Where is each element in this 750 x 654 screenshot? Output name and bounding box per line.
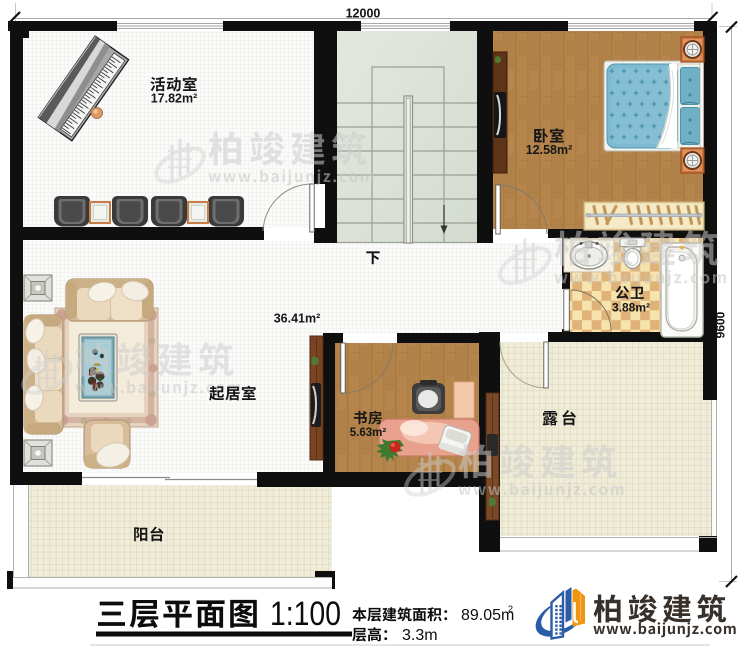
svg-text:3.88m²: 3.88m² — [612, 301, 650, 315]
svg-text:12.58m²: 12.58m² — [526, 143, 573, 157]
svg-text:89.05m: 89.05m — [461, 607, 514, 624]
svg-text:3.3m: 3.3m — [402, 627, 438, 644]
svg-text:17.82m²: 17.82m² — [151, 92, 198, 106]
svg-text:9600: 9600 — [714, 311, 728, 338]
svg-text:2: 2 — [508, 604, 513, 614]
svg-text:5.63m²: 5.63m² — [350, 427, 387, 439]
svg-text:12000: 12000 — [346, 7, 381, 21]
svg-text:36.41m²: 36.41m² — [274, 312, 321, 326]
